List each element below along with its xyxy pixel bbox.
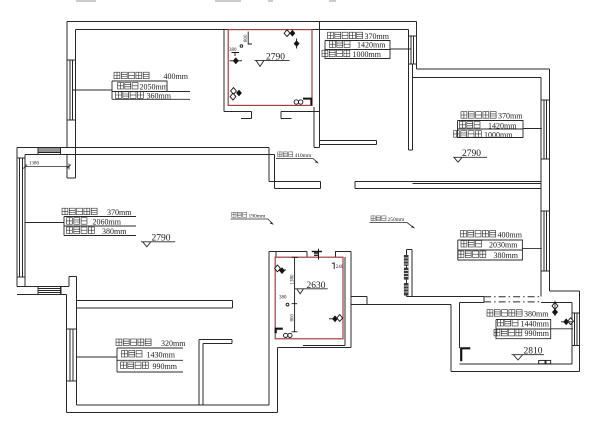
svg-text:1000mm: 1000mm xyxy=(484,131,513,140)
svg-text:370mm: 370mm xyxy=(498,112,523,121)
svg-text:380: 380 xyxy=(229,48,237,53)
svg-text:1420mm: 1420mm xyxy=(357,41,386,50)
svg-text:800: 800 xyxy=(291,314,296,322)
svg-text:370mm: 370mm xyxy=(365,32,390,41)
svg-text:380mm: 380mm xyxy=(524,310,549,319)
svg-text:1380: 1380 xyxy=(29,162,40,167)
svg-text:370mm: 370mm xyxy=(107,208,132,217)
svg-text:400mm: 400mm xyxy=(498,230,523,239)
svg-text:240: 240 xyxy=(336,265,344,270)
svg-text:800: 800 xyxy=(244,34,249,42)
svg-text:990mm: 990mm xyxy=(153,362,178,371)
svg-text:380mm: 380mm xyxy=(102,227,127,236)
svg-text:1430mm: 1430mm xyxy=(147,350,176,359)
svg-text:400mm: 400mm xyxy=(164,72,189,81)
svg-text:1440mm: 1440mm xyxy=(521,319,550,328)
svg-text:2630: 2630 xyxy=(307,281,326,291)
svg-text:320mm: 320mm xyxy=(161,339,186,348)
svg-text:2060mm: 2060mm xyxy=(93,218,122,227)
svg-text:990mm: 990mm xyxy=(525,329,550,338)
svg-text:380: 380 xyxy=(279,296,287,301)
svg-text:2050mm: 2050mm xyxy=(140,82,169,91)
svg-text:380mm: 380mm xyxy=(494,251,519,260)
svg-text:1000mm: 1000mm xyxy=(353,50,382,59)
svg-text:2030mm: 2030mm xyxy=(489,240,518,249)
svg-text:2790: 2790 xyxy=(266,53,285,63)
svg-text:1380: 1380 xyxy=(291,274,296,285)
